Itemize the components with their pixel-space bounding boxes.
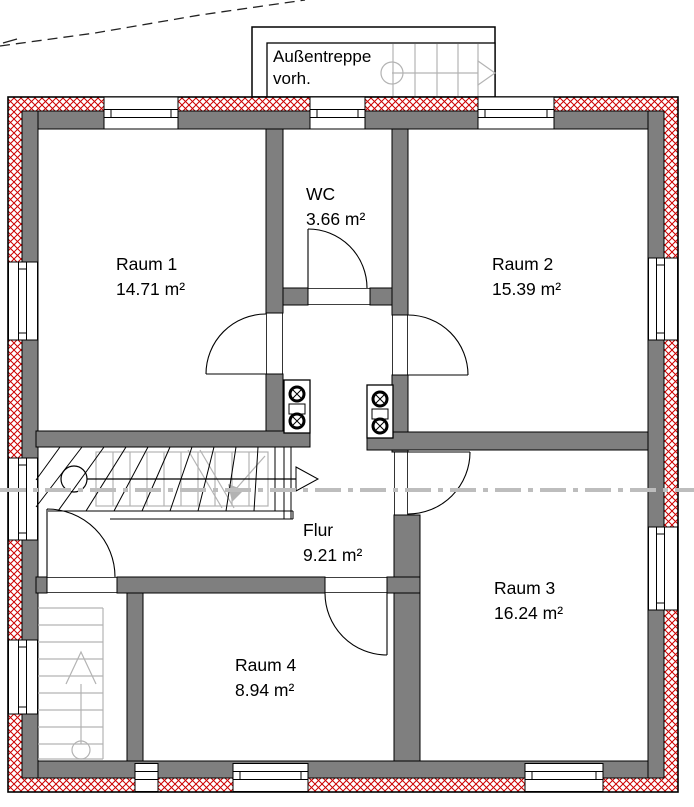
wall-flur-raum4	[117, 577, 325, 593]
room-name: Raum 2	[492, 254, 553, 274]
room-area: 15.39 m²	[492, 279, 561, 299]
exterior-stair-label-line1: Außentreppe	[273, 47, 371, 66]
wall-flur-raum3	[394, 515, 420, 761]
wall-wc-south-right	[370, 288, 392, 305]
wall-wc-south-left	[283, 288, 308, 305]
window-stair-west	[9, 458, 38, 540]
wall-raum1-stair	[36, 431, 310, 447]
room-area: 14.71 m²	[116, 279, 185, 299]
room-name: Raum 1	[116, 254, 177, 274]
wall-raum2-raum3	[367, 432, 648, 450]
window-raum2-north	[478, 97, 554, 129]
window-raum3-east	[649, 527, 678, 610]
room-area: 3.66 m²	[306, 209, 365, 229]
floor-plan-svg: Außentreppe vorh.	[0, 0, 694, 807]
window-raum3-south	[525, 764, 603, 792]
wall-wc-raum2	[392, 129, 408, 315]
window-raum4-south	[233, 764, 308, 792]
chimney-left	[284, 380, 310, 433]
window-raum2-east	[649, 258, 678, 340]
room-area: 9.21 m²	[303, 545, 362, 565]
room-name: WC	[306, 184, 335, 204]
window-raum1-north	[104, 97, 178, 129]
exterior-stair: Außentreppe vorh.	[252, 27, 495, 97]
room-name: Raum 3	[494, 578, 555, 598]
exterior-stair-label-line2: vorh.	[273, 69, 311, 88]
room-area: 16.24 m²	[494, 603, 563, 623]
window-stairroom-south	[135, 764, 158, 792]
window-raum1-west	[9, 262, 38, 340]
wall-stairroom-raum4	[127, 593, 143, 761]
chimney-right	[367, 385, 393, 438]
window-wc-north	[310, 97, 365, 129]
window-stairroom-west	[9, 640, 38, 714]
room-name: Raum 4	[235, 655, 297, 675]
wall-raum1-wc	[266, 129, 283, 313]
floor-plan: Außentreppe vorh.	[0, 0, 694, 807]
room-area: 8.94 m²	[235, 680, 294, 700]
room-name: Flur	[303, 520, 333, 540]
